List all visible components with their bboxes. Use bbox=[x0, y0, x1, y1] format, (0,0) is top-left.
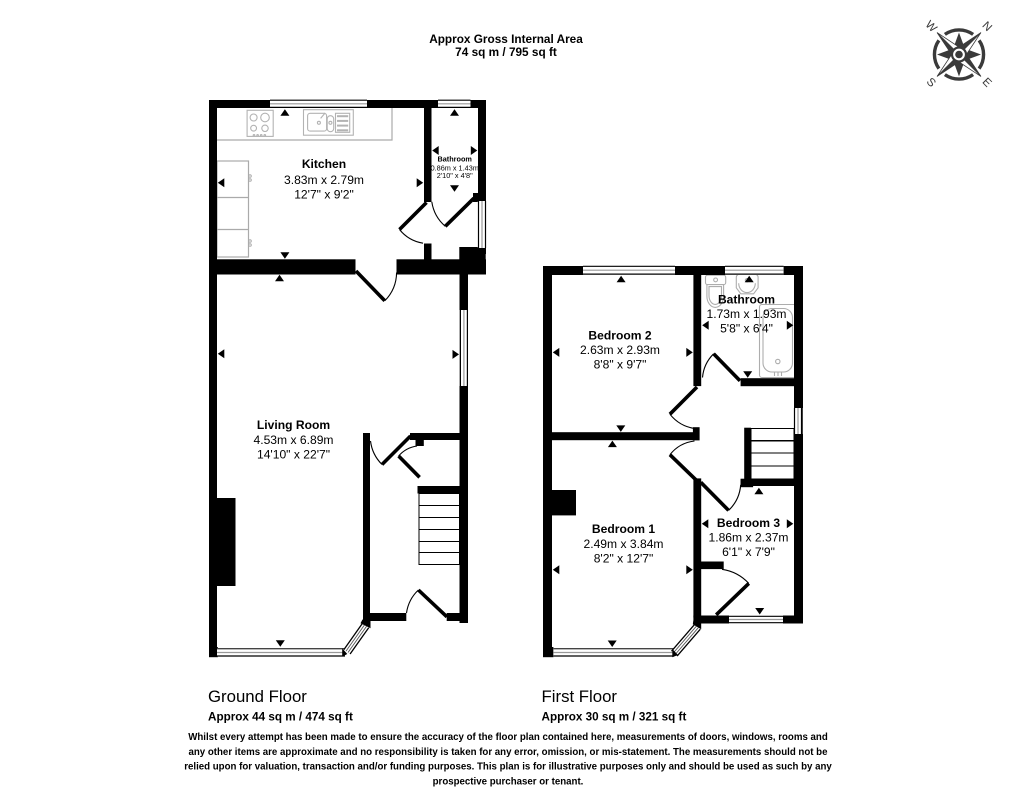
svg-text:3.83m x 2.79m: 3.83m x 2.79m bbox=[284, 173, 364, 187]
svg-text:Living Room: Living Room bbox=[257, 418, 330, 432]
svg-text:any other items are approximat: any other items are approximate and no r… bbox=[188, 747, 828, 758]
svg-text:Kitchen: Kitchen bbox=[302, 157, 346, 171]
svg-text:1.73m x 1.93m: 1.73m x 1.93m bbox=[707, 307, 787, 321]
svg-text:2.49m x 3.84m: 2.49m x 3.84m bbox=[584, 537, 664, 551]
svg-text:6'1" x 7'9": 6'1" x 7'9" bbox=[722, 545, 775, 559]
svg-text:Whilst every attempt has been: Whilst every attempt has been made to en… bbox=[188, 732, 828, 743]
svg-text:Bedroom 1: Bedroom 1 bbox=[592, 522, 655, 536]
svg-text:8'2" x 12'7": 8'2" x 12'7" bbox=[594, 552, 654, 566]
svg-text:12'7" x 9'2": 12'7" x 9'2" bbox=[294, 188, 354, 202]
svg-text:14'10" x 22'7": 14'10" x 22'7" bbox=[257, 448, 330, 462]
svg-text:5'8" x 6'4": 5'8" x 6'4" bbox=[720, 322, 773, 336]
svg-text:prospective purchaser or tenan: prospective purchaser or tenant. bbox=[433, 776, 584, 787]
svg-text:Approx Gross Internal Area: Approx Gross Internal Area bbox=[429, 32, 583, 46]
svg-text:2'10" x 4'8": 2'10" x 4'8" bbox=[437, 171, 473, 180]
svg-text:Bedroom 3: Bedroom 3 bbox=[717, 516, 780, 530]
svg-text:Approx 44 sq m / 474 sq ft: Approx 44 sq m / 474 sq ft bbox=[208, 711, 353, 724]
svg-text:Approx 30 sq m / 321 sq ft: Approx 30 sq m / 321 sq ft bbox=[542, 711, 687, 724]
svg-text:74 sq m / 795 sq ft: 74 sq m / 795 sq ft bbox=[455, 45, 557, 59]
svg-text:Bathroom: Bathroom bbox=[718, 293, 775, 307]
svg-text:Bathroom: Bathroom bbox=[437, 155, 472, 164]
svg-text:First Floor: First Floor bbox=[542, 687, 618, 706]
svg-text:Ground Floor: Ground Floor bbox=[208, 687, 307, 706]
svg-text:relied upon for valuation, tra: relied upon for valuation, transaction a… bbox=[184, 762, 832, 773]
svg-text:2.63m x 2.93m: 2.63m x 2.93m bbox=[580, 343, 660, 357]
svg-text:1.86m x 2.37m: 1.86m x 2.37m bbox=[709, 531, 789, 545]
svg-text:4.53m x 6.89m: 4.53m x 6.89m bbox=[254, 433, 334, 447]
svg-text:8'8" x 9'7": 8'8" x 9'7" bbox=[594, 358, 647, 372]
svg-text:Bedroom 2: Bedroom 2 bbox=[588, 329, 651, 343]
